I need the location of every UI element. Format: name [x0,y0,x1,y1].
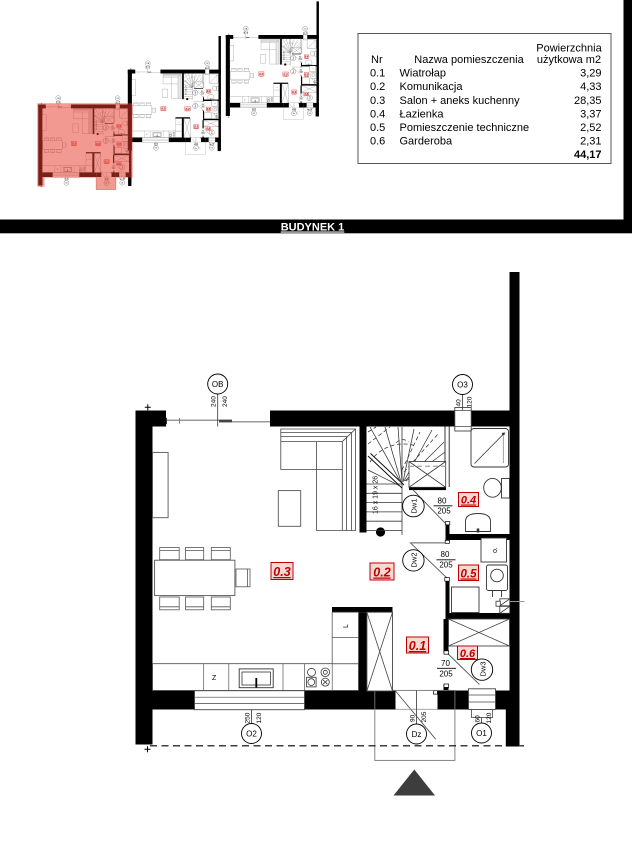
svg-text:2,31: 2,31 [580,136,601,148]
svg-text:44,17: 44,17 [574,149,602,161]
svg-text:BUDYNEK 1: BUDYNEK 1 [281,222,345,234]
svg-text:28,35: 28,35 [574,95,602,107]
svg-text:3,37: 3,37 [580,108,601,120]
svg-text:Salon + aneks kuchenny: Salon + aneks kuchenny [400,95,521,107]
svg-text:0.3: 0.3 [370,95,385,107]
svg-text:Łazienka: Łazienka [400,108,445,120]
svg-text:0.1: 0.1 [370,68,385,80]
svg-text:Nr: Nr [371,54,383,66]
svg-text:0.4: 0.4 [370,108,385,120]
svg-text:3,29: 3,29 [580,68,601,80]
svg-text:Powierzchnia: Powierzchnia [536,43,602,55]
svg-text:Pomieszczenie techniczne: Pomieszczenie techniczne [400,122,530,134]
svg-text:4,33: 4,33 [580,81,601,93]
svg-text:użytkowa m2: użytkowa m2 [537,54,601,66]
svg-text:0.5: 0.5 [370,122,385,134]
svg-text:0.6: 0.6 [370,136,385,148]
svg-text:Komunikacja: Komunikacja [400,81,464,93]
svg-text:Nazwa pomieszczenia: Nazwa pomieszczenia [414,54,524,66]
svg-text:2,52: 2,52 [580,122,601,134]
svg-text:Garderoba: Garderoba [400,136,453,148]
svg-text:0.2: 0.2 [370,81,385,93]
svg-text:Wiatrołap: Wiatrołap [400,68,446,80]
